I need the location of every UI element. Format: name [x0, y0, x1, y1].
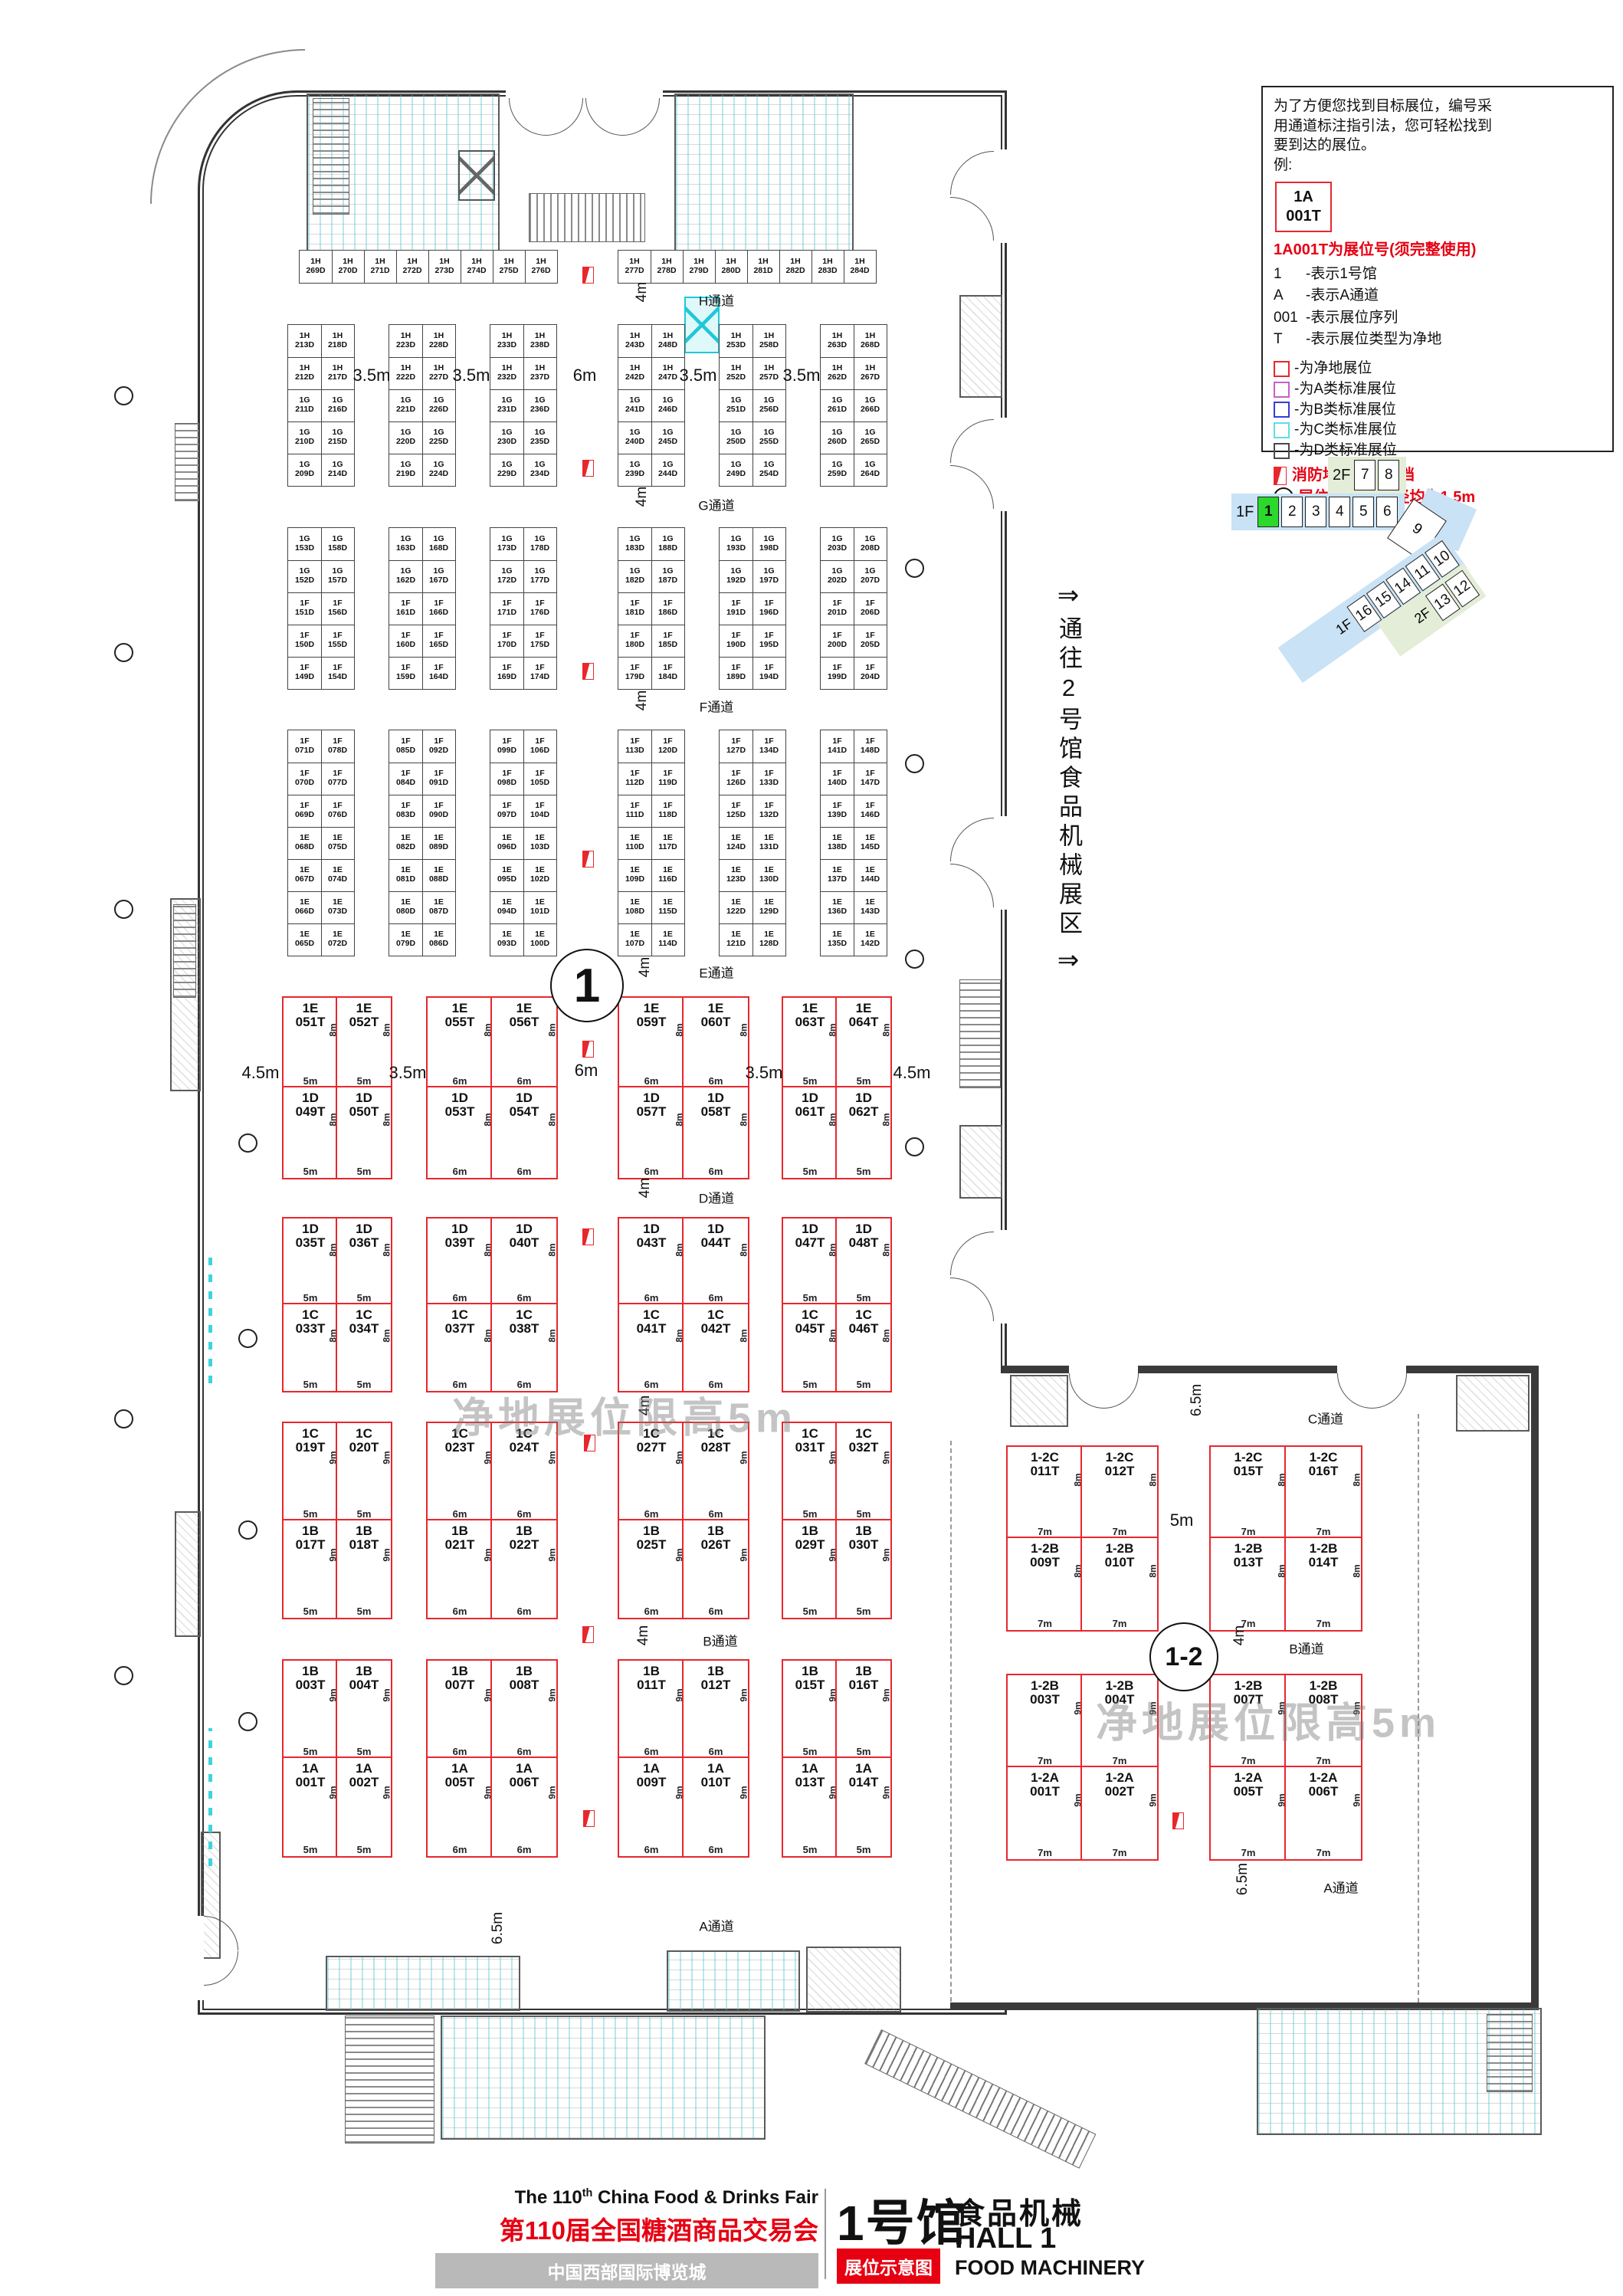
dimension-label: 5m	[1170, 1510, 1194, 1530]
booth-cell: 1E129D	[752, 891, 785, 924]
vent-strip	[208, 1728, 212, 1866]
booth-block: 1H233D1H238D1H232D1H237D1G231D1G236D1G23…	[490, 324, 557, 487]
booth-cell: 1F206D	[854, 592, 887, 625]
booth-width-dim: 6m	[492, 1075, 556, 1087]
booth-clear: 1D039T6m8m	[426, 1217, 493, 1306]
booth-width-dim: 6m	[684, 1166, 748, 1177]
booth-depth-dim: 8m	[1351, 1473, 1362, 1486]
booth-cell: 1F166D	[422, 592, 455, 625]
booth-cell: 1H283D	[811, 251, 844, 283]
booth-cell: 1F077D	[321, 763, 354, 795]
booth-cell: 1H233D	[490, 325, 524, 358]
booth-clear: 1D049T5m8m	[282, 1086, 339, 1179]
booth-width-dim: 6m	[492, 1166, 556, 1177]
booth-width-dim: 6m	[619, 1292, 684, 1304]
booth-clear: 1C032T5m9m	[835, 1422, 892, 1522]
booth-cell: 1F125D	[720, 795, 753, 828]
booth-width-dim: 5m	[837, 1844, 890, 1855]
booth-width-dim: 7m	[1082, 1847, 1157, 1858]
booth-cell: 1F185D	[651, 625, 684, 658]
booth-depth-dim: 8m	[381, 1329, 392, 1342]
booth-cell: 1E107D	[618, 923, 652, 956]
legend-code-item: 001-表示展位序列	[1274, 307, 1602, 330]
aisle-label: H通道	[699, 290, 734, 310]
booth-cell: 1F148D	[854, 730, 887, 763]
booth-depth-dim: 8m	[738, 1329, 749, 1342]
booth-block: 1F085D1F092D1F084D1F091D1F083D1F090D1E08…	[389, 730, 456, 956]
booth-cell: 1H279D	[683, 251, 716, 283]
door-opening	[192, 1916, 204, 2000]
booth-block: 1H243D1H248D1H242D1H247D1G241D1G246D1G24…	[618, 324, 685, 487]
booth-clear: 1B022T6m9m	[490, 1519, 558, 1619]
booth-cell: 1G225D	[422, 421, 455, 454]
booth-cell: 1G261D	[821, 389, 854, 422]
booth-width-dim: 5m	[337, 1292, 391, 1304]
door-opening	[993, 149, 1007, 243]
legend-type-row: -为A类标准展位	[1274, 379, 1602, 400]
booth-cell: 1G203D	[821, 528, 854, 561]
booth-depth-dim: 9m	[880, 1548, 891, 1561]
aisle-label: C通道	[1308, 1409, 1343, 1428]
fire-well-icon	[582, 267, 594, 284]
booth-cell: 1G259D	[821, 454, 854, 486]
sample-booth-box: 1A 001T	[1275, 182, 1332, 232]
booth-clear: 1A014T5m9m	[835, 1756, 892, 1858]
booth-width-dim: 6m	[684, 1508, 748, 1520]
booth-cell: 1E074D	[321, 859, 354, 892]
booth-cell: 1G173D	[490, 528, 524, 561]
booth-cell: 1H282D	[779, 251, 812, 283]
booth-cell: 1F174D	[523, 657, 556, 689]
booth-cell: 1F171D	[490, 592, 524, 625]
booth-depth-dim: 8m	[546, 1023, 557, 1036]
booth-cell: 1G215D	[321, 421, 354, 454]
booth-width-dim: 5m	[284, 1075, 337, 1087]
booth-clear: 1C034T5m8m	[336, 1303, 392, 1392]
booth-clear: 1B016T5m9m	[835, 1659, 892, 1760]
fire-well-icon	[1172, 1812, 1184, 1829]
booth-depth-dim: 9m	[381, 1786, 392, 1799]
booth-width-dim: 7m	[1286, 1847, 1361, 1858]
column-marker	[114, 643, 133, 662]
booth-cell: 1F113D	[618, 730, 652, 763]
booth-depth-dim: 9m	[1351, 1793, 1362, 1806]
column-marker	[238, 1329, 257, 1348]
booth-cell: 1E086D	[422, 923, 455, 956]
booth-cell: 1E065D	[288, 923, 322, 956]
booth-cell: 1G239D	[618, 454, 652, 486]
facility-restroom	[326, 1956, 520, 2011]
booth-id: 1-2A005T	[1211, 1771, 1286, 1799]
hall-category-en: FOOD MACHINERY	[955, 2256, 1145, 2280]
booth-cell: 1F118D	[651, 795, 684, 828]
booth-cell: 1F126D	[720, 763, 753, 795]
booth-width-dim: 7m	[1286, 1526, 1361, 1537]
booth-width-dim: 7m	[1082, 1755, 1157, 1766]
booth-cell: 1F175D	[523, 625, 556, 658]
booth-width-dim: 5m	[337, 1606, 391, 1617]
booth-width-dim: 5m	[337, 1844, 391, 1855]
booth-cell: 1G210D	[288, 421, 322, 454]
booth-cell: 1E135D	[821, 923, 854, 956]
booth-width-dim: 7m	[1211, 1526, 1286, 1537]
booth-cell: 1G246D	[651, 389, 684, 422]
booth-width-dim: 6m	[492, 1746, 556, 1757]
booth-cell: 1F170D	[490, 625, 524, 658]
booth-clear: 1B030T5m9m	[835, 1519, 892, 1619]
booth-cell: 1E116D	[651, 859, 684, 892]
booth-cell: 1G162D	[389, 560, 423, 593]
booth-cell: 1H253D	[720, 325, 753, 358]
booth-cell: 1E087D	[422, 891, 455, 924]
booth-depth-dim: 9m	[738, 1786, 749, 1799]
booth-width-dim: 5m	[337, 1379, 391, 1390]
booth-cell: 1H275D	[493, 251, 526, 283]
booth-cell: 1F199D	[821, 657, 854, 689]
booth-clear: 1E060T6m8m	[682, 996, 749, 1089]
booth-cell: 1F091D	[422, 763, 455, 795]
booth-width-dim: 6m	[428, 1844, 492, 1855]
booth-cell: 1G207D	[854, 560, 887, 593]
wall-pocket	[959, 1125, 1002, 1199]
dimension-label: 4m	[1231, 1625, 1248, 1645]
booth-cell: 1G264D	[854, 454, 887, 486]
facility	[806, 1947, 901, 2012]
booth-cell: 1F104D	[523, 795, 556, 828]
booth-cell: 1H222D	[389, 357, 423, 390]
booth-clear: 1B011T6m9m	[618, 1659, 685, 1760]
booth-depth-dim: 9m	[738, 1548, 749, 1561]
booth-clear: 1-2C011T7m8m	[1006, 1445, 1084, 1540]
booth-depth-dim: 9m	[381, 1548, 392, 1561]
fire-well-icon	[1274, 467, 1287, 485]
dimension-label: 3.5m	[746, 1063, 783, 1083]
legend-intro-line: 要到达的展位。	[1274, 136, 1602, 156]
booth-cell: 1G236D	[523, 389, 556, 422]
booth-cell: 1H228D	[422, 325, 455, 358]
booth-cell: 1H248D	[651, 325, 684, 358]
booth-clear: 1E064T5m8m	[835, 996, 892, 1089]
booth-cell: 1E079D	[389, 923, 423, 956]
dimension-label: 6.5m	[1234, 1863, 1251, 1895]
booth-cell: 1E093D	[490, 923, 524, 956]
booth-cell: 1F076D	[321, 795, 354, 828]
booth-width-dim: 6m	[619, 1606, 684, 1617]
booth-cell: 1F164D	[422, 657, 455, 689]
booth-clear: 1D053T6m8m	[426, 1086, 493, 1179]
booth-cell: 1F161D	[389, 592, 423, 625]
booth-cell: 1H268D	[854, 325, 887, 358]
booth-cell: 1F069D	[288, 795, 322, 828]
booth-cell: 1F159D	[389, 657, 423, 689]
minimap-hall-cell: 1	[1257, 497, 1279, 527]
booth-id: 1-2A002T	[1082, 1771, 1157, 1799]
fire-well-icon	[583, 1810, 595, 1827]
booth-cell: 1F190D	[720, 625, 753, 658]
booth-clear: 1A009T6m9m	[618, 1756, 685, 1858]
column-marker	[905, 1137, 924, 1156]
booth-cell: 1G220D	[389, 421, 423, 454]
booth-cell: 1F151D	[288, 592, 322, 625]
booth-block: 1H253D1H258D1H252D1H257D1G251D1G256D1G25…	[719, 324, 786, 487]
ramp-stairs	[864, 2029, 1096, 2169]
fair-title-cn: 第110届全国糖酒商品交易会	[420, 2210, 818, 2247]
dimension-label: 3.5m	[680, 366, 717, 385]
booth-width-dim: 6m	[619, 1166, 684, 1177]
booth-width-dim: 5m	[783, 1292, 837, 1304]
booth-width-dim: 6m	[684, 1606, 748, 1617]
booth-code-note: 1A001T为展位号(须完整使用)	[1274, 237, 1602, 259]
booth-cell: 1E121D	[720, 923, 753, 956]
booth-cell: 1F084D	[389, 763, 423, 795]
booth-cell: 1F133D	[752, 763, 785, 795]
booth-cell: 1E072D	[321, 923, 354, 956]
booth-width-dim: 7m	[1211, 1755, 1286, 1766]
booth-cell: 1G163D	[389, 528, 423, 561]
minimap-floor-label: 1F	[1236, 503, 1254, 521]
booth-clear: 1C038T6m8m	[490, 1303, 558, 1392]
booth-cell: 1F189D	[720, 657, 753, 689]
minimap-hall-cell: 2	[1281, 497, 1303, 527]
booth-cell: 1H271D	[364, 251, 397, 283]
booth-clear: 1C046T5m8m	[835, 1303, 892, 1392]
booth-width-dim: 5m	[837, 1166, 890, 1177]
booth-cell: 1F111D	[618, 795, 652, 828]
booth-clear: 1C045T5m8m	[782, 1303, 838, 1392]
booth-depth-dim: 8m	[381, 1114, 392, 1127]
booth-width-dim: 5m	[837, 1075, 890, 1087]
booth-width-dim: 7m	[1211, 1618, 1286, 1629]
booth-cell: 1G231D	[490, 389, 524, 422]
booth-cell: 1F083D	[389, 795, 423, 828]
booth-depth-dim: 9m	[381, 1688, 392, 1701]
booth-type-swatch	[1274, 382, 1290, 398]
venue-bar: 中国西部国际博览城	[435, 2253, 818, 2288]
booth-cell: 1F181D	[618, 592, 652, 625]
door-opening	[993, 816, 1007, 910]
booth-width-dim: 5m	[783, 1075, 837, 1087]
booth-width-dim: 6m	[619, 1844, 684, 1855]
booth-cell: 1H232D	[490, 357, 524, 390]
booth-width-dim: 5m	[337, 1075, 391, 1087]
zone-marker: 1	[550, 949, 624, 1022]
booth-cell: 1F085D	[389, 730, 423, 763]
booth-id: 1-2B010T	[1082, 1542, 1157, 1570]
aisle-label: D通道	[699, 1188, 734, 1207]
wall-pocket	[959, 295, 1002, 398]
booth-width-dim: 7m	[1082, 1526, 1157, 1537]
booth-cell: 1F127D	[720, 730, 753, 763]
watermark: 净地展位限高5m	[452, 1384, 797, 1445]
booth-clear: 1B029T5m9m	[782, 1519, 838, 1619]
vent-strip	[208, 1257, 212, 1383]
booth-cell: 1H269D	[300, 251, 333, 283]
booth-cell: 1E122D	[720, 891, 753, 924]
hall-name-en: HALL 1	[955, 2222, 1056, 2255]
booth-cell: 1H263D	[821, 325, 854, 358]
booth-cell: 1G197D	[752, 560, 785, 593]
booth-cell: 1E068D	[288, 827, 322, 860]
booth-cell: 1G245D	[651, 421, 684, 454]
booth-clear: 1E063T5m8m	[782, 996, 838, 1089]
booth-clear: 1D061T5m8m	[782, 1086, 838, 1179]
booth-cell: 1G255D	[752, 421, 785, 454]
booth-cell: 1F194D	[752, 657, 785, 689]
booth-cell: 1H273D	[428, 251, 461, 283]
fire-well-icon	[582, 1626, 594, 1643]
dimension-label: 4m	[634, 487, 651, 507]
booth-cell: 1E142D	[854, 923, 887, 956]
booth-cell: 1H217D	[321, 357, 354, 390]
booth-cell: 1E080D	[389, 891, 423, 924]
booth-block: 1H277D1H278D1H279D1H280D1H281D1H282D1H28…	[618, 250, 877, 284]
legend-code-item: T-表示展位类型为净地	[1274, 329, 1602, 351]
booth-cell: 1H237D	[523, 357, 556, 390]
booth-clear: 1-2B010T7m8m	[1080, 1537, 1159, 1632]
booth-cell: 1E143D	[854, 891, 887, 924]
booth-id: 1-2C011T	[1008, 1451, 1082, 1479]
booth-cell: 1F205D	[854, 625, 887, 658]
booth-cell: 1E073D	[321, 891, 354, 924]
booth-clear: 1B025T6m9m	[618, 1519, 685, 1619]
booth-cell: 1G183D	[618, 528, 652, 561]
booth-cell: 1G219D	[389, 454, 423, 486]
booth-depth-dim: 9m	[546, 1786, 557, 1799]
booth-depth-dim: 8m	[381, 1023, 392, 1036]
booth-clear: 1-2A005T7m9m	[1209, 1766, 1287, 1861]
legend-type-row: -为B类标准展位	[1274, 400, 1602, 421]
booth-block: 1F127D1F134D1F126D1F133D1F125D1F132D1E12…	[719, 730, 786, 956]
fair-title-en: The 110th China Food & Drinks Fair	[420, 2187, 818, 2209]
booth-block: 1F141D1F148D1F140D1F147D1F139D1F146D1E13…	[820, 730, 887, 956]
booth-cell: 1F201D	[821, 592, 854, 625]
booth-clear: 1D057T6m8m	[618, 1086, 685, 1179]
door-leaf-icon	[1337, 1373, 1372, 1409]
dimension-label: 6m	[573, 366, 597, 385]
booth-cell: 1F196D	[752, 592, 785, 625]
legend-code-item: A-表示A通道	[1274, 285, 1602, 307]
booth-clear: 1B017T5m9m	[282, 1519, 339, 1619]
booth-width-dim: 5m	[837, 1292, 890, 1304]
booth-clear: 1C020T5m9m	[336, 1422, 392, 1522]
booth-cell: 1G172D	[490, 560, 524, 593]
minimap-floor-label: 2F	[1412, 605, 1434, 627]
booth-cell: 1E130D	[752, 859, 785, 892]
legend-type-row: -为净地展位	[1274, 359, 1602, 379]
booth-cell: 1G177D	[523, 560, 556, 593]
booth-cell: 1H277D	[618, 251, 651, 283]
booth-block: 1H213D1H218D1H212D1H217D1G211D1G216D1G21…	[287, 324, 355, 487]
booth-clear: 1D035T5m8m	[282, 1217, 339, 1306]
booth-cell: 1H257D	[752, 357, 785, 390]
booth-width-dim: 6m	[428, 1508, 492, 1520]
elevator	[458, 150, 495, 201]
dimension-label: 4m	[637, 957, 654, 977]
booth-depth-dim: 8m	[381, 1243, 392, 1256]
plan-badge: 展位示意图	[837, 2248, 940, 2284]
booth-cell: 1G229D	[490, 454, 524, 486]
dimension-label: 6m	[575, 1061, 598, 1081]
booth-cell: 1F106D	[523, 730, 556, 763]
booth-cell: 1E103D	[523, 827, 556, 860]
booth-cell: 1F169D	[490, 657, 524, 689]
booth-block: 1G203D1G208D1G202D1G207D1F201D1F206D1F20…	[820, 527, 887, 690]
booth-cell: 1G240D	[618, 421, 652, 454]
booth-cell: 1H212D	[288, 357, 322, 390]
booth-width-dim: 7m	[1082, 1618, 1157, 1629]
booth-width-dim: 6m	[684, 1292, 748, 1304]
booth-id: 1-2B003T	[1008, 1679, 1082, 1707]
booth-width-dim: 5m	[284, 1379, 337, 1390]
booth-cell: 1F119D	[651, 763, 684, 795]
column-marker	[238, 1712, 257, 1731]
booth-clear: 1-2B014T7m8m	[1284, 1537, 1362, 1632]
booth-cell: 1E096D	[490, 827, 524, 860]
booth-cell: 1G226D	[422, 389, 455, 422]
booth-cell: 1F165D	[422, 625, 455, 658]
column-marker	[114, 1666, 133, 1685]
booth-cell: 1E117D	[651, 827, 684, 860]
stairs	[173, 904, 196, 998]
legend-type-row: -为C类标准展位	[1274, 420, 1602, 441]
booth-cell: 1G265D	[854, 421, 887, 454]
door-leaf-icon	[1069, 1373, 1104, 1409]
booth-clear: 1C019T5m9m	[282, 1422, 339, 1522]
booth-cell: 1F154D	[321, 657, 354, 689]
booth-clear: 1B021T6m9m	[426, 1519, 493, 1619]
booth-cell: 1H218D	[321, 325, 354, 358]
dimension-label: 6.5m	[1189, 1384, 1205, 1416]
booth-width-dim: 5m	[337, 1166, 391, 1177]
booth-depth-dim: 8m	[1147, 1473, 1158, 1486]
booth-id: 1-2C015T	[1211, 1451, 1286, 1479]
booth-cell: 1E082D	[389, 827, 423, 860]
legend-fire-row: 消防地井严禁遮挡	[1274, 464, 1602, 486]
booth-width-dim: 5m	[783, 1606, 837, 1617]
booth-cell: 1E109D	[618, 859, 652, 892]
booth-clear: 1C037T6m8m	[426, 1303, 493, 1392]
booth-cell: 1F204D	[854, 657, 887, 689]
booth-cell: 1F120D	[651, 730, 684, 763]
booth-depth-dim: 8m	[546, 1329, 557, 1342]
minimap-1f-group: 1F123456	[1231, 494, 1405, 530]
booth-cell: 1E123D	[720, 859, 753, 892]
booth-cell: 1G230D	[490, 421, 524, 454]
booth-width-dim: 6m	[428, 1292, 492, 1304]
column-marker	[905, 754, 924, 773]
arrow-right-icon: ⇒	[1044, 947, 1093, 973]
booth-width-dim: 7m	[1008, 1618, 1082, 1629]
booth-id: 1-2B009T	[1008, 1542, 1082, 1570]
booth-cell: 1F099D	[490, 730, 524, 763]
booth-cell: 1G167D	[422, 560, 455, 593]
zone-dashed-line	[950, 1441, 952, 2002]
booth-cell: 1F140D	[821, 763, 854, 795]
booth-depth-dim: 9m	[880, 1786, 891, 1799]
stairs	[313, 98, 349, 215]
legend-code-items: 1-表示1号馆A-表示A通道001-表示展位序列T-表示展位类型为净地	[1274, 264, 1602, 351]
booth-cell: 1H258D	[752, 325, 785, 358]
booth-cell: 1E101D	[523, 891, 556, 924]
booth-depth-dim: 9m	[546, 1688, 557, 1701]
hall-name-cn: 1号馆	[837, 2184, 967, 2255]
arrow-right-icon: ⇒	[1044, 582, 1093, 608]
booth-cell: 1G211D	[288, 389, 322, 422]
booth-cell: 1F180D	[618, 625, 652, 658]
dimension-label: 4m	[634, 690, 651, 710]
booth-cell: 1G250D	[720, 421, 753, 454]
to-hall2-note: ⇒ 通往2号馆食品机械展区 ⇒	[1044, 582, 1093, 973]
